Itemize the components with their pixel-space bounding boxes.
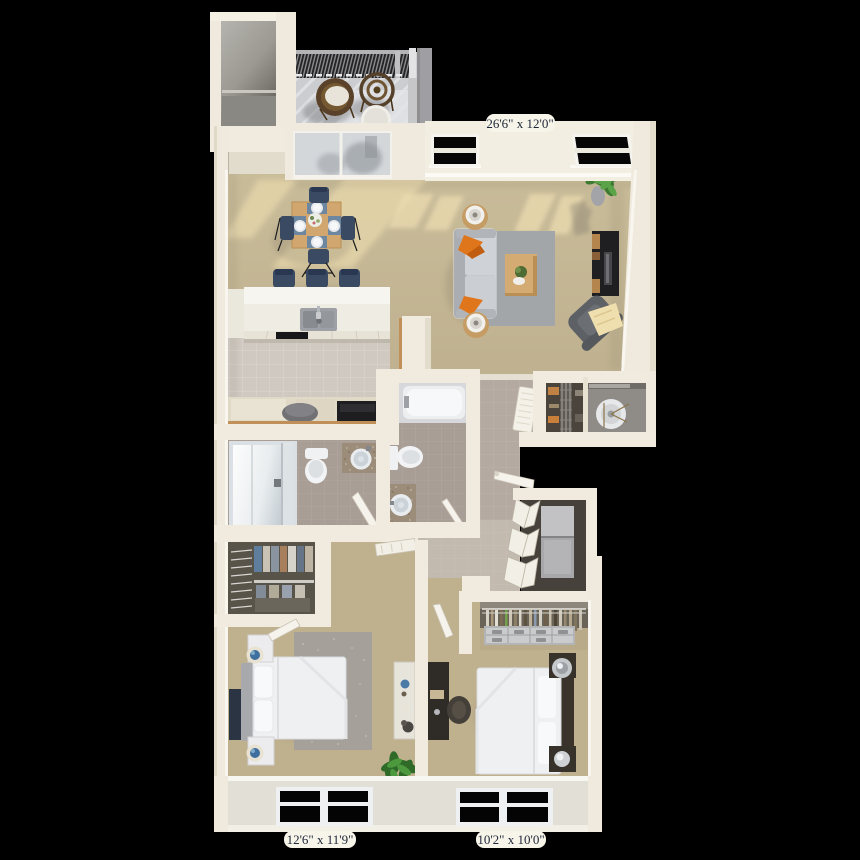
svg-text:12'6" x 11'9": 12'6" x 11'9" [287,832,354,847]
svg-text:10'2" x 10'0": 10'2" x 10'0" [477,832,544,847]
svg-text:26'6" x 12'0": 26'6" x 12'0" [486,116,553,131]
